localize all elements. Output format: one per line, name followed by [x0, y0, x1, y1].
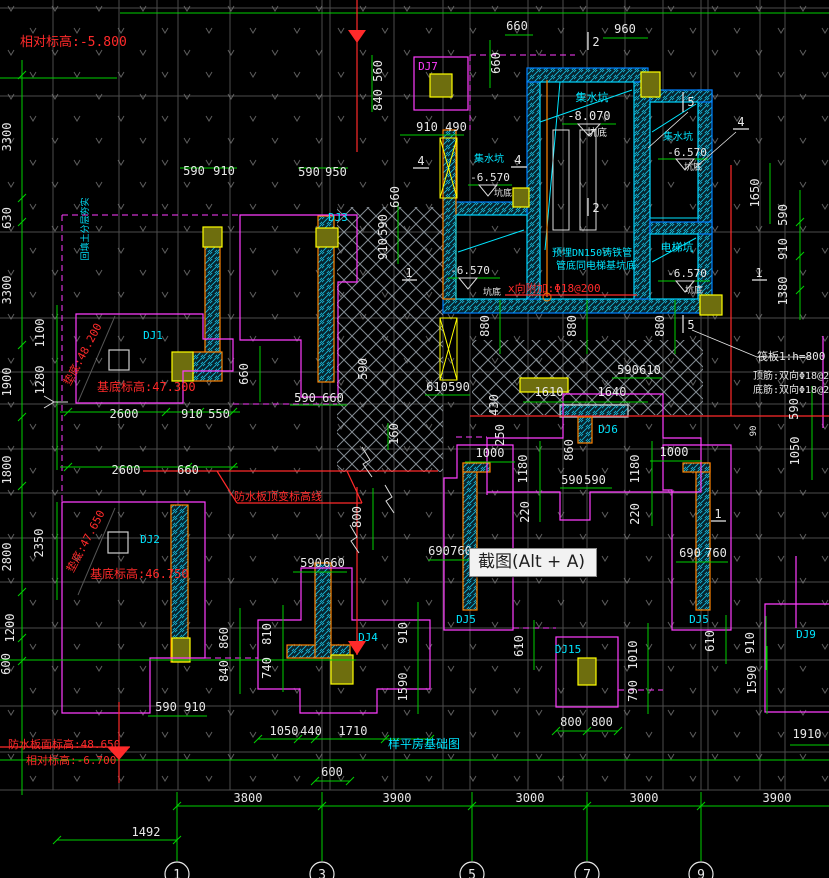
dim-label: 800: [591, 715, 613, 729]
pit-label: 坑底: [587, 126, 607, 139]
section-marker: 1: [714, 507, 721, 521]
pipe-note: 管底同电梯基坑底: [556, 259, 636, 272]
elevation-note: 防水板面标高:48.650: [8, 737, 120, 751]
dim-label: 600: [321, 765, 343, 779]
pit-label: 集水坑: [663, 130, 693, 143]
pit-label: 坑底: [483, 286, 501, 298]
dim-label: 3800: [234, 791, 263, 805]
axis-bubble-label: 5: [468, 868, 476, 878]
section-marker: 2: [592, 35, 599, 49]
dim-label: 1180: [628, 455, 642, 484]
dim-label: 660: [237, 363, 251, 385]
dim-label: 1000: [476, 446, 505, 460]
pit-label: 集水坑: [576, 90, 609, 104]
pit-label: 坑底: [685, 284, 703, 296]
dim-label: 1100: [33, 319, 47, 348]
dim-label: 1590: [396, 673, 410, 702]
dim-label: 1050: [788, 437, 802, 466]
dim-label: 1000: [660, 445, 689, 459]
axis-bubble-label: 9: [697, 868, 705, 878]
dim-label: 590: [617, 363, 639, 377]
dim-label: 760: [705, 546, 727, 560]
dim-label: 590: [584, 473, 606, 487]
dim-label: 590: [356, 358, 370, 380]
dim-label: 1650: [748, 179, 762, 208]
dim-label: 880: [478, 315, 492, 337]
dim-label: 1610: [535, 385, 564, 399]
pit-label: 电梯坑: [661, 240, 694, 254]
dim-label: 910: [743, 632, 757, 654]
dim-label: 2800: [0, 543, 14, 572]
footing-label: DJ4: [358, 631, 378, 644]
dim-label: 590: [448, 380, 470, 394]
dim-label: 960: [614, 22, 636, 36]
elevation-note: 相对标高:-6.700: [26, 753, 116, 767]
dim-label: 560: [371, 60, 385, 82]
dim-label: 1010: [626, 641, 640, 670]
dim-label: 220: [628, 503, 642, 525]
dim-label: 860: [217, 627, 231, 649]
cad-canvas[interactable]: 相对标高:-5.800垫底:48.200基底标高:47.300垫底:47.650…: [0, 0, 829, 878]
dim-label: 1280: [33, 366, 47, 395]
dim-label: 590: [298, 165, 320, 179]
dim-label: 880: [565, 315, 579, 337]
dim-label: 590: [294, 391, 316, 405]
rebar-note: x向附加:Φ18@200: [508, 281, 601, 295]
dim-label: 840: [371, 89, 385, 111]
pit-elevation: -6.570: [667, 267, 707, 280]
dim-label: 160: [387, 423, 401, 445]
dim-label: 590: [776, 204, 790, 226]
footing-label: DJ7: [418, 60, 438, 73]
dim-label: 790: [626, 680, 640, 702]
footing-label: DJ5: [689, 613, 709, 626]
dim-label: 880: [653, 315, 667, 337]
raft-note: 筏板1:h=800: [757, 349, 825, 363]
dim-label: 220: [518, 501, 532, 523]
footing-label: DJ3: [328, 211, 348, 224]
section-marker: 5: [687, 95, 694, 109]
pit-elevation: -6.570: [667, 146, 707, 159]
dim-label: 600: [0, 653, 13, 675]
dim-label: 690: [428, 544, 450, 558]
dim-label: 490: [445, 120, 467, 134]
pit-elevation: -8.070: [567, 109, 610, 123]
section-marker: 4: [737, 115, 744, 129]
dim-label: 810: [260, 623, 274, 645]
dim-label: 610: [426, 380, 448, 394]
dim-label: 660: [322, 391, 344, 405]
dim-label: 630: [0, 207, 14, 229]
screenshot-tooltip[interactable]: 截图(Alt + A): [469, 548, 597, 577]
dim-label: 690: [679, 546, 701, 560]
dim-label: 3300: [0, 123, 14, 152]
dim-label: 3000: [516, 791, 545, 805]
dim-label: 2350: [32, 529, 46, 558]
dim-label: 590: [300, 556, 322, 570]
pit-elevation: -6.570: [450, 264, 490, 277]
dim-label: 590: [561, 473, 583, 487]
dim-label: 910: [396, 622, 410, 644]
dim-label: 610: [639, 363, 661, 377]
pipe-note: 预埋DN150铸铁管: [552, 246, 632, 259]
dim-label: 2600: [112, 463, 141, 477]
dim-label: 910: [213, 164, 235, 178]
dim-label: 840: [217, 660, 231, 682]
dim-label: 590: [787, 398, 801, 420]
dim-label: 590: [376, 214, 390, 236]
dim-label: 660: [388, 186, 402, 208]
dim-label: 1900: [0, 368, 14, 397]
pit-label: 坑底: [494, 187, 512, 199]
axis-bubble-label: 1: [173, 868, 181, 878]
pit-label: 集水坑: [474, 152, 504, 165]
rebar-note: 底筋:双向Φ18@200: [753, 383, 829, 396]
footing-label: DJ6: [598, 423, 618, 436]
dim-label: 800: [560, 715, 582, 729]
dim-label: 550: [208, 407, 230, 421]
footing-label: DJ15: [555, 643, 582, 656]
footing-label: DJ5: [456, 613, 476, 626]
dim-label: 910: [181, 407, 203, 421]
dim-label: 590: [183, 164, 205, 178]
dim-label: 910: [416, 120, 438, 134]
dim-label: 660: [489, 52, 503, 74]
waterproof-note: 防水板顶变标高线: [234, 489, 322, 503]
elevation-note: 相对标高:-5.800: [20, 34, 127, 50]
fill-note: 回填土分层夯实: [79, 197, 91, 260]
dim-label: 3900: [763, 791, 792, 805]
section-marker: 4: [417, 154, 424, 168]
elevation-note: 基底标高:46.750: [90, 566, 189, 581]
dim-label: 910: [184, 700, 206, 714]
dim-label: 2600: [110, 407, 139, 421]
pit-label: 坑底: [684, 161, 702, 173]
dim-label: 3300: [0, 276, 14, 305]
pit-elevation: -6.570: [470, 171, 510, 184]
footing-label: DJ9: [796, 628, 816, 641]
section-marker: 1: [755, 266, 762, 280]
dim-label: 740: [260, 657, 274, 679]
dim-label: 1380: [776, 277, 790, 306]
dim-label: 800: [350, 506, 364, 528]
dim-label: 950: [325, 165, 347, 179]
dim-label: 1800: [0, 456, 14, 485]
dim-label: 910: [376, 238, 390, 260]
dim-label: 590: [155, 700, 177, 714]
dim-label: 430: [487, 394, 501, 416]
footing-label: DJ2: [140, 533, 160, 546]
dim-label: 1200: [3, 614, 17, 643]
dim-label: 660: [506, 19, 528, 33]
dim-label: 3900: [383, 791, 412, 805]
dim-label: 1492: [132, 825, 161, 839]
drawing-title: 样平房基础图: [388, 736, 460, 751]
rebar-note: 顶筋:双向Φ18@200: [753, 369, 829, 382]
section-marker: 4: [514, 153, 521, 167]
dim-label: 910: [776, 238, 790, 260]
dim-label: 610: [703, 630, 717, 652]
dim-label: 1640: [598, 385, 627, 399]
dim-label: 250: [493, 424, 507, 446]
dim-label: 3000: [630, 791, 659, 805]
footing-label: DJ1: [143, 329, 163, 342]
elevation-note: 基底标高:47.300: [97, 379, 196, 394]
dim-label: 1180: [516, 455, 530, 484]
dim-label: 610: [512, 635, 526, 657]
dim-label: 660: [177, 463, 199, 477]
dim-label: 860: [562, 439, 576, 461]
dim-label: 90: [749, 426, 759, 437]
dim-label: 660: [323, 556, 345, 570]
section-marker: 1: [405, 266, 412, 280]
axis-bubble-label: 3: [318, 868, 326, 878]
dim-label: 440: [300, 724, 322, 738]
cad-viewport[interactable]: 相对标高:-5.800垫底:48.200基底标高:47.300垫底:47.650…: [0, 0, 829, 878]
axis-bubble-label: 7: [583, 868, 591, 878]
section-marker: 2: [592, 201, 599, 215]
dim-label: 1710: [339, 724, 368, 738]
dim-label: 1050: [270, 724, 299, 738]
dim-label: 1910: [793, 727, 822, 741]
section-marker: 5: [687, 318, 694, 332]
dim-label: 1590: [745, 666, 759, 695]
